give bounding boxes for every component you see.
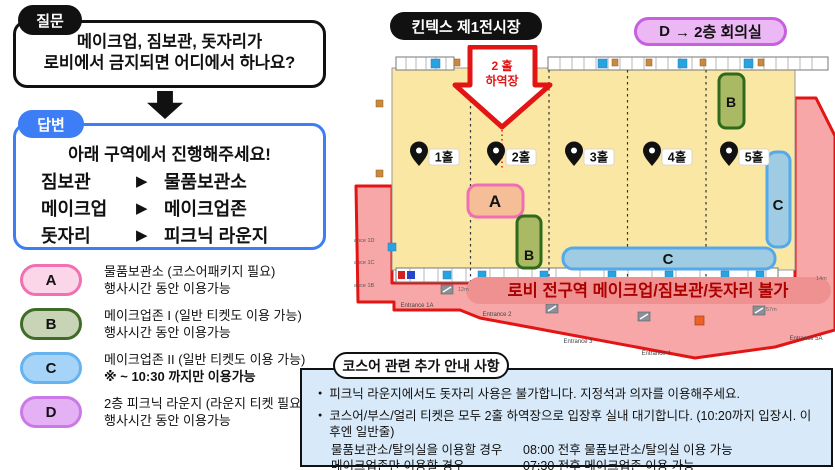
- notice-row-2: 메이크업존만 이용할 경우 07:30 전후 메이크업존 이용 가능: [331, 458, 821, 470]
- legend-d-line2: 행사시간 동안 이용가능: [104, 412, 305, 429]
- venue-map: A B B C C 1홀 2홀 3홀: [348, 45, 835, 360]
- legend-item-a: A 물품보관소 (코스어패키지 필요) 행사시간 동안 이용가능: [20, 262, 335, 298]
- zone-b1-letter: B: [524, 247, 534, 263]
- zone-b2-letter: B: [726, 94, 736, 110]
- entrance-2-label: Entrance 2: [482, 312, 512, 318]
- notice-row1-label: 물품보관소/탈의실을 이용할 경우: [331, 442, 523, 458]
- answer-term: 돗자리: [41, 222, 136, 248]
- d-room-badge: D: [659, 23, 670, 40]
- notice-row2-value: 07:30 전후 메이크업존 이용 가능: [523, 458, 695, 470]
- answer-row: 메이크업 ▶ 메이크업존: [41, 194, 321, 221]
- zone-b-badge: B: [20, 308, 82, 340]
- legend-item-d: D 2층 피크닉 라운지 (라운지 티켓 필요) 행사시간 동안 이용가능: [20, 394, 335, 430]
- legend-c-line1: 메이크업존 II (일반 티켓도 이용 가능): [104, 351, 305, 368]
- legend-b-line1: 메이크업존 I (일반 티켓도 이용 가능): [104, 307, 302, 324]
- question-label: 질문: [18, 5, 82, 35]
- question-line-2: 로비에서 금지되면 어디에서 하나요?: [13, 53, 326, 74]
- entrance-1d-label: ance 1D: [354, 238, 375, 244]
- loading-arrow-line2: 하역장: [485, 73, 518, 88]
- answer-dest: 피크닉 라운지: [164, 222, 268, 248]
- notice-row-1: 물품보관소/탈의실을 이용할 경우 08:00 전후 물품보관소/탈의실 이용 …: [331, 442, 821, 458]
- legend-a-line2: 행사시간 동안 이용가능: [104, 280, 275, 297]
- entrance-5a-label: Entrance 5A: [789, 336, 822, 342]
- hall-1-label: 1홀: [435, 150, 454, 165]
- d-room-note: D → 2층 회의실: [634, 17, 787, 46]
- notice-row2-label: 메이크업존만 이용할 경우: [331, 458, 523, 470]
- zone-a-badge: A: [20, 264, 82, 296]
- answer-label: 답변: [18, 110, 84, 138]
- hall-4-label: 4홀: [668, 150, 687, 165]
- question-line-1: 메이크업, 짐보관, 돗자리가: [13, 32, 326, 53]
- question-text: 메이크업, 짐보관, 돗자리가 로비에서 금지되면 어디에서 하나요?: [13, 32, 326, 74]
- ban-banner-text: 로비 전구역 메이크업/짐보관/돗자리 불가: [508, 281, 789, 300]
- distance-14m: 14m: [816, 276, 827, 282]
- hall-5-label: 5홀: [745, 150, 764, 165]
- legend-d-line1: 2층 피크닉 라운지 (라운지 티켓 필요): [104, 395, 305, 412]
- zone-c-badge: C: [20, 352, 82, 384]
- down-arrow-icon: [147, 91, 183, 119]
- pointer-icon: ▶: [136, 172, 164, 190]
- entrance-1c-label: ance 1C: [354, 260, 375, 266]
- zone-c1-letter: C: [773, 197, 784, 214]
- hall-2-label: 2홀: [512, 150, 531, 165]
- answer-term: 메이크업: [41, 195, 136, 221]
- notice-row1-value: 08:00 전후 물품보관소/탈의실 이용 가능: [523, 442, 733, 458]
- legend-item-c: C 메이크업존 II (일반 티켓도 이용 가능) ※ ~ 10:30 까지만 …: [20, 350, 335, 386]
- distance-12m: 12m: [458, 287, 469, 293]
- answer-row: 짐보관 ▶ 물품보관소: [41, 167, 321, 194]
- pointer-icon: ▶: [136, 226, 164, 244]
- answer-rows: 짐보관 ▶ 물품보관소 메이크업 ▶ 메이크업존 돗자리 ▶ 피크닉 라운지: [41, 167, 321, 248]
- loading-arrow-line1: 2 홀: [491, 58, 512, 73]
- entrance-4-label: Entrance 4: [641, 351, 671, 357]
- answer-row: 돗자리 ▶ 피크닉 라운지: [41, 221, 321, 248]
- map-title: 킨텍스 제1전시장: [390, 12, 542, 40]
- entrance-1b-label: ance 1B: [354, 283, 375, 289]
- answer-intro: 아래 구역에서 진행해주세요!: [13, 140, 326, 165]
- legend-a-line1: 물품보관소 (코스어패키지 필요): [104, 263, 275, 280]
- infographic-root: 질문 메이크업, 짐보관, 돗자리가 로비에서 금지되면 어디에서 하나요? 답…: [0, 0, 835, 470]
- distance-57m: 57m: [766, 307, 777, 313]
- entrance-1a-label: Entrance 1A: [400, 303, 433, 309]
- d-room-text: → 2층 회의실: [675, 21, 762, 42]
- notice-bullet-2: 코스어/부스/얼리 티켓은 모두 2홀 하역장으로 입장후 실내 대기합니다. …: [318, 408, 821, 440]
- notice-bullet-1: 피크닉 라운지에서도 돗자리 사용은 불가합니다. 지정석과 의자를 이용해주세…: [318, 386, 821, 402]
- notice-box: 피크닉 라운지에서도 돗자리 사용은 불가합니다. 지정석과 의자를 이용해주세…: [300, 368, 833, 467]
- answer-term: 짐보관: [41, 168, 136, 194]
- notice-bullet2-text: 코스어/부스/얼리 티켓은 모두 2홀 하역장으로 입장후 실내 대기합니다. …: [329, 408, 821, 440]
- hall-3-label: 3홀: [590, 150, 609, 165]
- legend-c-line2: ※ ~ 10:30 까지만 이용가능: [104, 368, 305, 385]
- zone-d-badge: D: [20, 396, 82, 428]
- legend-b-line2: 행사시간 동안 이용가능: [104, 324, 302, 341]
- answer-dest: 메이크업존: [164, 195, 247, 221]
- legend-item-b: B 메이크업존 I (일반 티켓도 이용 가능) 행사시간 동안 이용가능: [20, 306, 335, 342]
- zone-c2-letter: C: [663, 251, 674, 268]
- notice-title: 코스어 관련 추가 안내 사항: [333, 352, 509, 379]
- pointer-icon: ▶: [136, 199, 164, 217]
- answer-dest: 물품보관소: [164, 168, 247, 194]
- zone-a-letter: A: [489, 192, 501, 211]
- entrance-3-label: Entrance 3: [563, 339, 593, 345]
- notice-bullet1-text: 피크닉 라운지에서도 돗자리 사용은 불가합니다. 지정석과 의자를 이용해주세…: [329, 386, 740, 402]
